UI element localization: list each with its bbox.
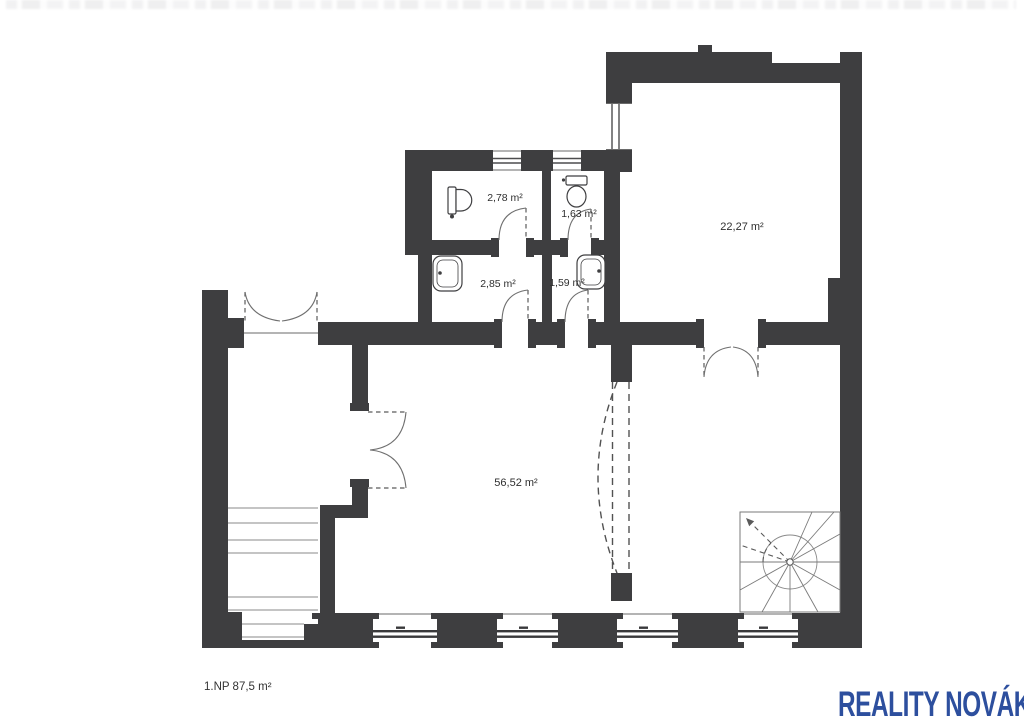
main-room-swing-door	[368, 412, 406, 488]
window-bath-left	[493, 150, 521, 171]
bottom-wall-and-windows	[228, 613, 862, 648]
floor-title: 1.NP 87,5 m²	[204, 681, 272, 693]
archway-opening	[598, 382, 629, 573]
room-area-label-anteroom-small: 1,59 m²	[549, 277, 585, 289]
window-bay-4	[738, 614, 798, 638]
staircase	[228, 508, 320, 642]
window-bay-3	[617, 614, 678, 638]
entrance-double-door	[244, 292, 318, 333]
room-area-label-wc-large: 2,78 m²	[487, 192, 523, 204]
room-area-label-room-right: 22,27 m²	[720, 221, 764, 233]
toilet-wc-small	[562, 176, 587, 207]
window-bath-right	[553, 150, 581, 171]
anteroom-large-door	[502, 290, 528, 322]
toilet-wc-large	[448, 187, 472, 219]
door-jambs	[350, 238, 766, 487]
floor-plan-page: 2,78 m² 1,63 m² 2,85 m² 1,59 m² 22,27 m²…	[0, 0, 1024, 724]
room-area-label-wc-small: 1,63 m²	[561, 208, 597, 220]
wc-large-door	[499, 208, 526, 240]
right-room-double-door	[704, 347, 758, 377]
window-right-room	[606, 103, 632, 150]
interior-walls	[320, 150, 632, 648]
brand-logo: REALITY NOVÁK	[838, 685, 1024, 724]
room-area-label-anteroom-large: 2,85 m²	[480, 278, 516, 290]
room-area-label-room-main: 56,52 m²	[494, 477, 538, 489]
sink-anteroom-large	[433, 256, 462, 291]
anteroom-small-door	[565, 290, 588, 322]
spiral-staircase	[740, 512, 840, 612]
floor-plan-canvas: 2,78 m² 1,63 m² 2,85 m² 1,59 m² 22,27 m²…	[0, 0, 1024, 724]
window-bay-2	[497, 614, 558, 638]
window-bay-1	[373, 614, 437, 638]
